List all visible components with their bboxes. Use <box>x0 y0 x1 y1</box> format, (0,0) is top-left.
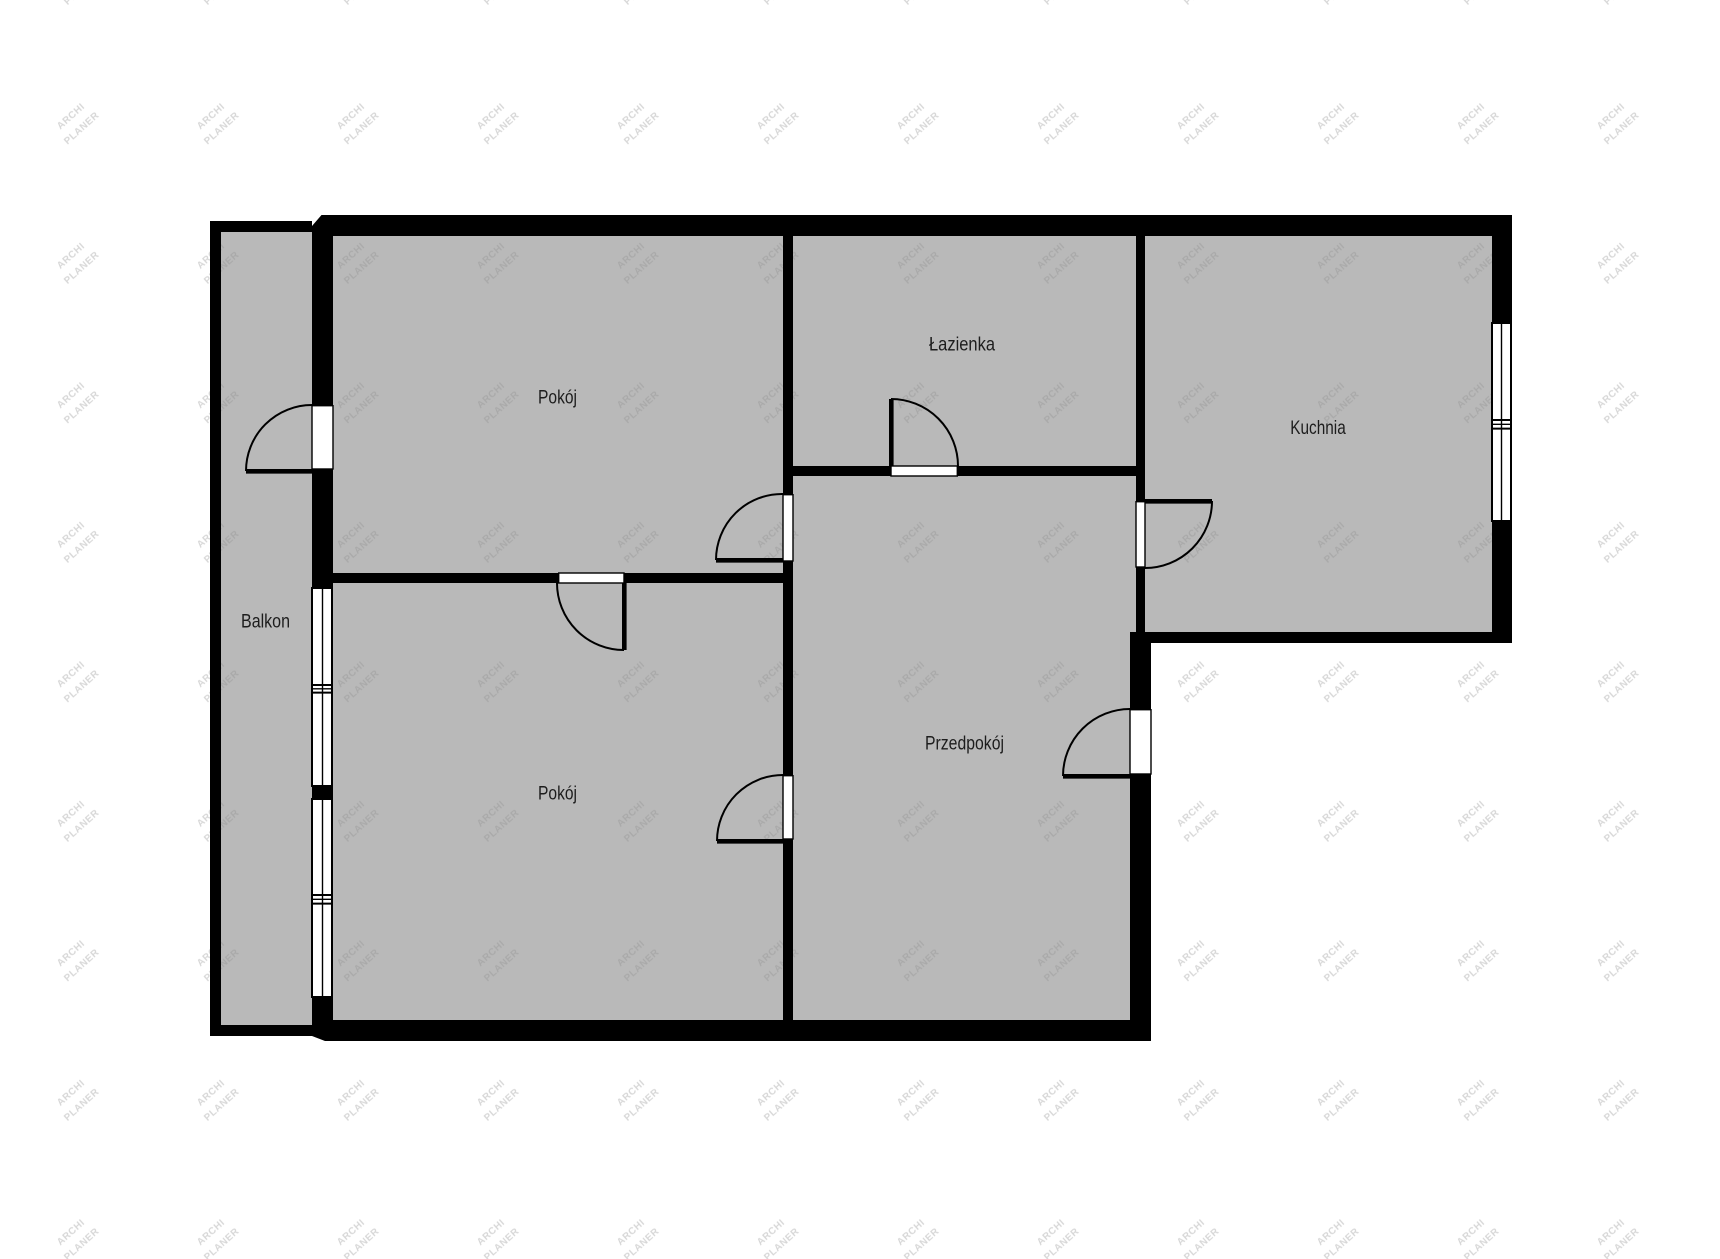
svg-text:Przedpokój: Przedpokój <box>925 733 1004 755</box>
svg-text:Kuchnia: Kuchnia <box>1290 417 1346 439</box>
svg-text:Pokój: Pokój <box>538 387 577 409</box>
svg-text:Łazienka: Łazienka <box>929 334 995 356</box>
svg-text:Pokój: Pokój <box>538 783 577 805</box>
svg-text:Balkon: Balkon <box>241 611 290 633</box>
